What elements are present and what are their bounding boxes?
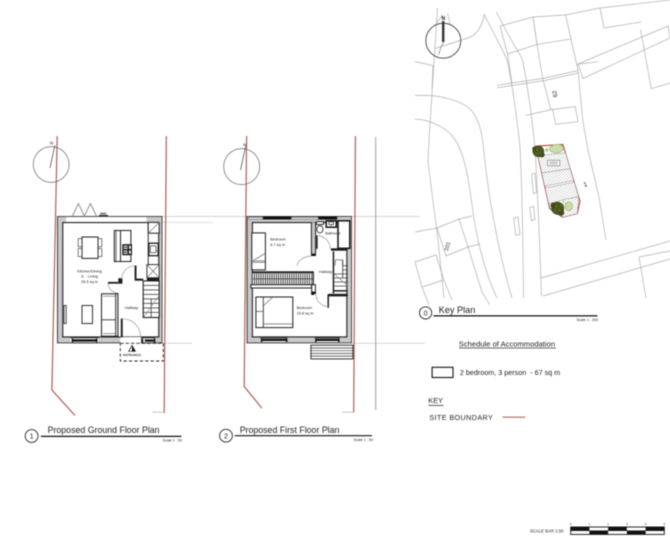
- svg-text:Scale 1 : 50: Scale 1 : 50: [163, 439, 182, 443]
- svg-text:Scale 1 : 200: Scale 1 : 200: [576, 318, 598, 322]
- svg-text:0: 0: [424, 311, 428, 318]
- svg-text:Scale 1 : 50: Scale 1 : 50: [354, 438, 373, 442]
- svg-text:Kitchen/Dining: Kitchen/Dining: [77, 270, 101, 274]
- svg-text:ENTRANCE: ENTRANCE: [123, 353, 141, 357]
- svg-text:N: N: [50, 141, 53, 146]
- svg-text:Proposed First Floor Plan: Proposed First Floor Plan: [240, 425, 340, 435]
- svg-text:Hallway: Hallway: [125, 306, 138, 310]
- svg-text:2 bedroom, 3 person - 67 sq m: 2 bedroom, 3 person - 67 sq m: [460, 368, 560, 377]
- svg-text:6.7 sq m: 6.7 sq m: [270, 243, 285, 247]
- svg-text:SCALE BAR 1:50: SCALE BAR 1:50: [530, 529, 564, 534]
- svg-text:15.8 sq m: 15.8 sq m: [297, 312, 314, 316]
- svg-text:25.5 sq m: 25.5 sq m: [81, 280, 98, 284]
- svg-text:N: N: [441, 16, 445, 22]
- svg-text:N: N: [243, 143, 246, 148]
- svg-text:KEY: KEY: [428, 396, 443, 405]
- svg-text:Hallway: Hallway: [319, 270, 332, 274]
- svg-text:SITE BOUNDARY: SITE BOUNDARY: [429, 413, 493, 422]
- svg-text:1: 1: [30, 432, 34, 441]
- svg-text:Proposed Ground Floor Plan: Proposed Ground Floor Plan: [48, 425, 160, 435]
- svg-text:Schedule of Accommodation: Schedule of Accommodation: [459, 339, 555, 348]
- svg-text:Key Plan: Key Plan: [439, 305, 476, 315]
- svg-text:Bedroom: Bedroom: [270, 237, 285, 241]
- svg-text:Bedroom: Bedroom: [297, 306, 312, 310]
- svg-text:2: 2: [224, 431, 228, 440]
- svg-text:& Living: & Living: [81, 275, 98, 279]
- svg-text:Bathroom: Bathroom: [325, 232, 340, 236]
